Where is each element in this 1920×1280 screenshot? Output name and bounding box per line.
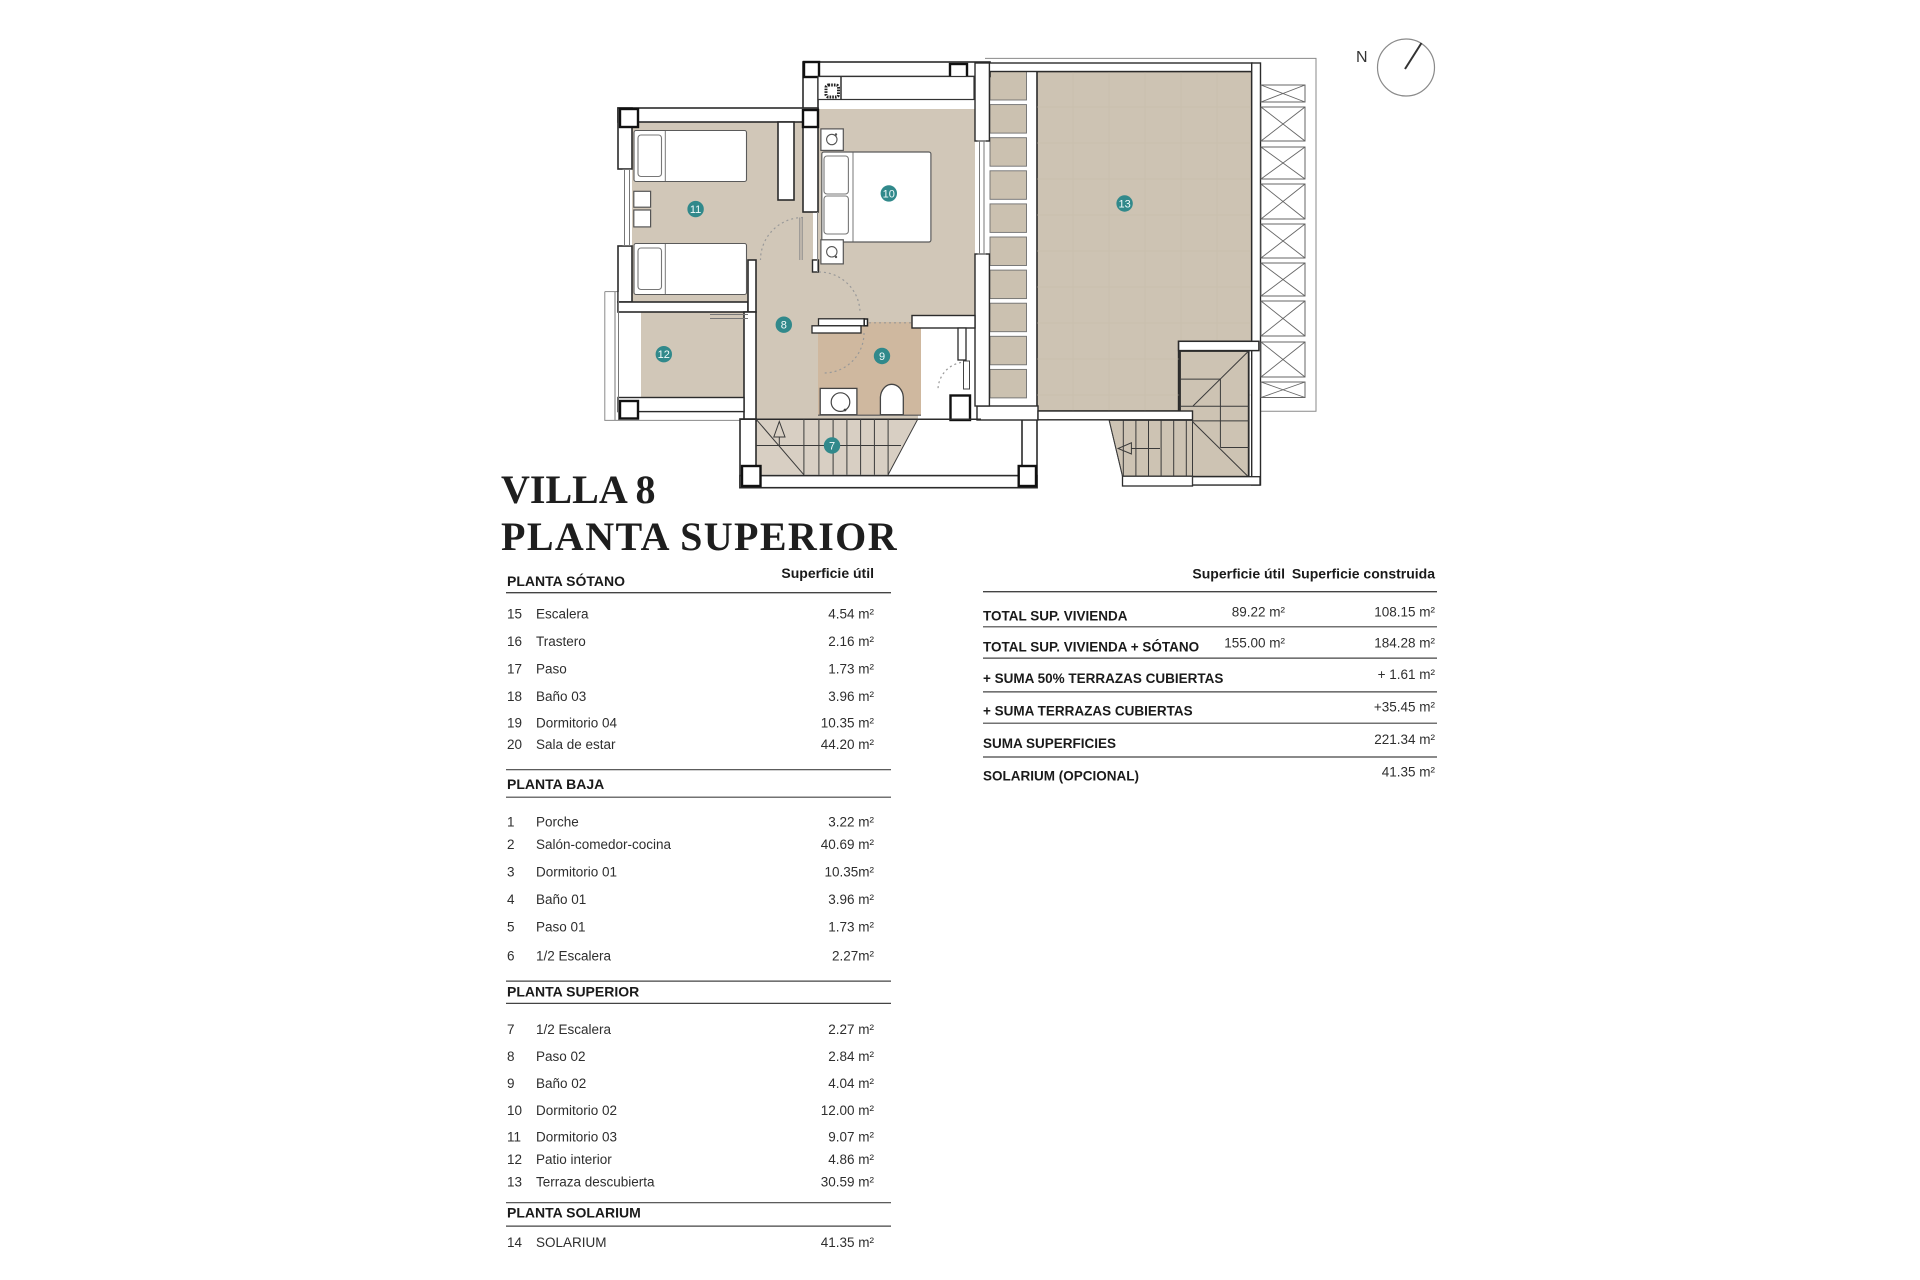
svg-text:Dormitorio 02: Dormitorio 02 [536, 1103, 617, 1118]
svg-text:Escalera: Escalera [536, 606, 589, 621]
svg-text:17: 17 [507, 661, 522, 676]
svg-text:3.96 m²: 3.96 m² [828, 892, 874, 907]
svg-text:4.86 m²: 4.86 m² [828, 1152, 874, 1167]
svg-text:10.35 m²: 10.35 m² [821, 715, 875, 730]
svg-text:SUMA SUPERFICIES: SUMA SUPERFICIES [983, 736, 1116, 751]
svg-text:VILLA 8: VILLA 8 [501, 467, 656, 512]
svg-text:221.34 m²: 221.34 m² [1374, 732, 1435, 747]
svg-text:Baño 01: Baño 01 [536, 892, 586, 907]
svg-text:Paso 01: Paso 01 [536, 919, 586, 934]
svg-text:8: 8 [507, 1049, 515, 1064]
svg-text:Superficie construida: Superficie construida [1292, 566, 1435, 582]
svg-text:PLANTA SUPERIOR: PLANTA SUPERIOR [507, 984, 639, 1000]
svg-text:Baño 03: Baño 03 [536, 689, 586, 704]
svg-text:4.04 m²: 4.04 m² [828, 1076, 874, 1091]
svg-text:30.59 m²: 30.59 m² [821, 1174, 875, 1189]
svg-text:PLANTA SOLARIUM: PLANTA SOLARIUM [507, 1204, 641, 1220]
svg-text:SOLARIUM (OPCIONAL): SOLARIUM (OPCIONAL) [983, 769, 1139, 784]
svg-text:SOLARIUM: SOLARIUM [536, 1235, 607, 1250]
svg-text:PLANTA SÓTANO: PLANTA SÓTANO [507, 572, 625, 589]
svg-text:12: 12 [507, 1152, 522, 1167]
svg-text:41.35 m²: 41.35 m² [821, 1235, 875, 1250]
svg-text:Terraza descubierta: Terraza descubierta [536, 1174, 655, 1189]
svg-text:Dormitorio 04: Dormitorio 04 [536, 715, 618, 730]
svg-text:2.16 m²: 2.16 m² [828, 634, 874, 649]
svg-text:Paso 02: Paso 02 [536, 1049, 586, 1064]
svg-text:9.07 m²: 9.07 m² [828, 1130, 874, 1145]
svg-text:+ SUMA 50% TERRAZAS CUBIERTAS: + SUMA 50% TERRAZAS CUBIERTAS [983, 671, 1223, 686]
svg-text:184.28 m²: 184.28 m² [1374, 636, 1435, 651]
svg-text:1: 1 [507, 814, 515, 829]
svg-text:6: 6 [507, 949, 515, 964]
svg-text:3: 3 [507, 864, 515, 879]
svg-text:108.15 m²: 108.15 m² [1374, 604, 1435, 619]
svg-text:Dormitorio 03: Dormitorio 03 [536, 1130, 617, 1145]
svg-text:+35.45 m²: +35.45 m² [1374, 699, 1436, 714]
svg-text:3.22 m²: 3.22 m² [828, 814, 874, 829]
svg-text:N: N [1356, 49, 1368, 66]
svg-text:1/2 Escalera: 1/2 Escalera [536, 1022, 612, 1037]
svg-text:4.54 m²: 4.54 m² [828, 606, 874, 621]
svg-text:2: 2 [507, 837, 515, 852]
svg-text:9: 9 [879, 351, 885, 363]
svg-text:Porche: Porche [536, 814, 579, 829]
svg-text:1.73 m²: 1.73 m² [828, 919, 874, 934]
svg-text:9: 9 [507, 1076, 515, 1091]
svg-text:Superficie útil: Superficie útil [1192, 566, 1285, 582]
svg-text:+ SUMA TERRAZAS CUBIERTAS: + SUMA TERRAZAS CUBIERTAS [983, 703, 1193, 718]
svg-text:40.69 m²: 40.69 m² [821, 837, 875, 852]
svg-text:Trastero: Trastero [536, 634, 586, 649]
svg-text:Dormitorio 01: Dormitorio 01 [536, 864, 617, 879]
svg-text:13: 13 [507, 1174, 522, 1189]
svg-text:TOTAL SUP. VIVIENDA: TOTAL SUP. VIVIENDA [983, 608, 1128, 623]
svg-text:Baño 02: Baño 02 [536, 1076, 586, 1091]
svg-text:20: 20 [507, 737, 522, 752]
svg-text:2.27m²: 2.27m² [832, 949, 875, 964]
svg-text:Sala de estar: Sala de estar [536, 737, 616, 752]
svg-text:10: 10 [883, 188, 895, 200]
svg-text:2.27 m²: 2.27 m² [828, 1022, 874, 1037]
svg-text:Patio interior: Patio interior [536, 1152, 612, 1167]
svg-text:Superficie útil: Superficie útil [781, 565, 874, 581]
svg-text:12: 12 [658, 349, 670, 361]
svg-text:1/2 Escalera: 1/2 Escalera [536, 949, 612, 964]
svg-text:15: 15 [507, 606, 522, 621]
svg-text:5: 5 [507, 919, 515, 934]
svg-text:Paso: Paso [536, 661, 567, 676]
svg-text:14: 14 [507, 1235, 523, 1250]
svg-text:7: 7 [507, 1022, 515, 1037]
svg-text:12.00 m²: 12.00 m² [821, 1103, 875, 1118]
svg-text:10: 10 [507, 1103, 522, 1118]
svg-text:10.35m²: 10.35m² [824, 864, 874, 879]
svg-text:18: 18 [507, 689, 522, 704]
svg-text:2.84 m²: 2.84 m² [828, 1049, 874, 1064]
svg-text:PLANTA BAJA: PLANTA BAJA [507, 776, 604, 792]
svg-text:4: 4 [507, 892, 515, 907]
svg-text:PLANTA SUPERIOR: PLANTA SUPERIOR [501, 514, 898, 559]
svg-text:16: 16 [507, 634, 522, 649]
svg-text:155.00 m²: 155.00 m² [1224, 636, 1285, 651]
svg-text:7: 7 [829, 440, 835, 452]
svg-text:TOTAL SUP. VIVIENDA + SÓTANO: TOTAL SUP. VIVIENDA + SÓTANO [983, 640, 1199, 655]
svg-text:8: 8 [781, 320, 787, 332]
svg-text:41.35 m²: 41.35 m² [1382, 765, 1436, 780]
svg-text:Salón-comedor-cocina: Salón-comedor-cocina [536, 837, 672, 852]
svg-text:+ 1.61 m²: + 1.61 m² [1378, 667, 1436, 682]
svg-text:3.96 m²: 3.96 m² [828, 689, 874, 704]
svg-text:11: 11 [507, 1130, 521, 1145]
svg-text:1.73 m²: 1.73 m² [828, 661, 874, 676]
svg-text:11: 11 [690, 204, 701, 216]
svg-text:19: 19 [507, 715, 522, 730]
svg-text:89.22 m²: 89.22 m² [1232, 604, 1286, 619]
svg-text:13: 13 [1118, 198, 1130, 210]
svg-text:44.20 m²: 44.20 m² [821, 737, 875, 752]
